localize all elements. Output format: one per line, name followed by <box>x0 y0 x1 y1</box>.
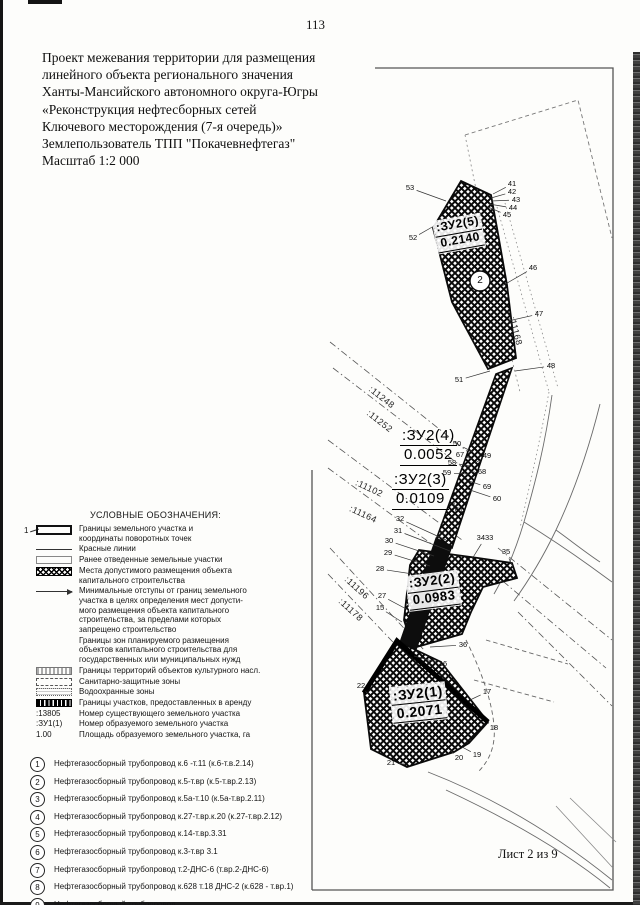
point-leader <box>386 612 402 622</box>
legend-symbol-sanitary-icon <box>36 678 72 686</box>
pipeline-item-number: 6 <box>30 845 45 860</box>
legend-symbol-prev-icon <box>36 556 72 564</box>
legend-symbol-text: 1.00 <box>36 730 72 740</box>
pipeline-item: 7Нефтегазосборный трубопровод т.2-ДНС-6 … <box>30 863 366 878</box>
dotted-line-continuation <box>520 392 549 528</box>
legend-symbol-water-icon <box>36 688 72 696</box>
legend-item-label: Санитарно-защитные зоны <box>79 677 180 687</box>
pipeline-items: 1Нефтегазосборный трубопровод к.6 -т.11 … <box>30 757 366 905</box>
legend-item-label: Границы участков, предоставленных в арен… <box>79 698 251 708</box>
pipeline-item-label: Нефтегазосборный трубопровод к.6 -т.11 (… <box>54 757 254 769</box>
pipeline-item: 3Нефтегазосборный трубопровод к.5а-т.10 … <box>30 792 366 807</box>
corridor-strip-upper <box>436 368 512 548</box>
pipeline-item: 4Нефтегазосборный трубопровод к.27-т.вр.… <box>30 810 366 825</box>
legend-item: Границы территорий объектов культурного … <box>36 666 330 676</box>
legend-item-label: Красные линии <box>79 544 136 554</box>
legend-item: Места допустимого размещения объекта кап… <box>36 566 330 585</box>
pipeline-item-number: 3 <box>30 792 45 807</box>
legend-item-label: Номер существующего земельного участка <box>79 709 240 719</box>
dashed-road-pair <box>466 640 568 772</box>
pipeline-item: 2Нефтегазосборный трубопровод к.5-т.вр (… <box>30 775 366 790</box>
point-leader <box>491 200 509 201</box>
legend-item: Границы зон планируемого размещения объе… <box>36 636 330 665</box>
pipeline-item: 8Нефтегазосборный трубопровод к.628 т.18… <box>30 880 366 895</box>
pipeline-item-number: 5 <box>30 827 45 842</box>
pipeline-item-number: 1 <box>30 757 45 772</box>
point-leader <box>488 723 489 724</box>
legend-item-label: Границы зон планируемого размещения объе… <box>79 636 240 665</box>
legend-item: Санитарно-защитные зоны <box>36 677 330 687</box>
pipeline-item-number: 2 <box>30 775 45 790</box>
legend: УСЛОВНЫЕ ОБОЗНАЧЕНИЯ: 1Границы земельног… <box>36 510 330 741</box>
legend-item-label: Номер образуемого земельного участка <box>79 719 228 729</box>
legend-symbol-text: :ЗУ1(1) <box>36 719 72 729</box>
point-leader <box>396 543 434 556</box>
road-lines <box>428 395 612 888</box>
legend-title: УСЛОВНЫЕ ОБОЗНАЧЕНИЯ: <box>90 510 330 520</box>
legend-item: Ранее отведенные земельные участки <box>36 555 330 565</box>
legend-item-label: Места допустимого размещения объекта кап… <box>79 566 232 585</box>
legend-item: :ЗУ1(1)Номер образуемого земельного учас… <box>36 719 330 729</box>
legend-item: Границы участков, предоставленных в арен… <box>36 698 330 708</box>
point-leader <box>493 187 506 194</box>
pipeline-item: 6Нефтегазосборный трубопровод к.3-т.вр 3… <box>30 845 366 860</box>
pipeline-item-label: Нефтегазосборный трубопровод к.5-т.вр (к… <box>54 775 256 787</box>
pipeline-item-label: Нефтегазосборный трубопровод к.14-т.вр.3… <box>54 827 227 839</box>
legend-item-label: Минимальные отступы от границ земельного… <box>79 586 247 635</box>
legend-item-label: Границы земельного участка и координаты … <box>79 524 193 543</box>
legend-symbol-culture-icon <box>36 667 72 675</box>
document-page: 113 Проект межевания территории для разм… <box>0 0 640 905</box>
legend-items: 1Границы земельного участка и координаты… <box>36 524 330 740</box>
legend-item-label: Границы территорий объектов культурного … <box>79 666 260 676</box>
pipeline-item-label: Нефтегазосборный трубопровод к.636 (т.8 … <box>54 898 239 905</box>
legend-symbol-arrow-icon <box>36 591 72 592</box>
pipeline-item-label: Нефтегазосборный трубопровод к.3-т.вр 3.… <box>54 845 218 857</box>
legend-symbol-boundary-icon <box>36 525 72 535</box>
pipeline-item-label: Нефтегазосборный трубопровод к.5а-т.10 (… <box>54 792 265 804</box>
legend-symbol-redline-icon <box>36 549 72 550</box>
pipeline-list: 1Нефтегазосборный трубопровод к.6 -т.11 … <box>30 757 366 905</box>
pipeline-item-number: 8 <box>30 880 45 895</box>
point-leader <box>417 190 446 201</box>
point-leader <box>466 371 490 378</box>
point-leader <box>470 695 481 700</box>
legend-item: Минимальные отступы от границ земельного… <box>36 586 330 635</box>
sheet-label: Лист 2 из 9 <box>498 847 618 862</box>
legend-item: 1Границы земельного участка и координаты… <box>36 524 330 543</box>
point-leader <box>472 544 481 559</box>
point-leader <box>462 747 471 752</box>
point-leader <box>491 194 505 198</box>
pipeline-item-number: 7 <box>30 863 45 878</box>
legend-item: Красные линии <box>36 544 330 554</box>
pipeline-item-number: 4 <box>30 810 45 825</box>
extra-marks <box>470 271 490 291</box>
pipeline-item: 5Нефтегазосборный трубопровод к.14-т.вр.… <box>30 827 366 842</box>
legend-item: :13805Номер существующего земельного уча… <box>36 709 330 719</box>
circled-point-icon <box>470 271 490 291</box>
legend-item-label: Ранее отведенные земельные участки <box>79 555 222 565</box>
point-leader <box>515 367 544 371</box>
pipeline-item-label: Нефтегазосборный трубопровод к.27-т.вр.к… <box>54 810 282 822</box>
legend-item: Водоохранные зоны <box>36 687 330 697</box>
legend-item-label: Водоохранные зоны <box>79 687 154 697</box>
legend-item: 1.00Площадь образуемого земельного участ… <box>36 730 330 740</box>
legend-symbol-lease-icon <box>36 699 72 707</box>
point-leader <box>419 226 434 235</box>
pipeline-item-number: 9 <box>30 898 45 905</box>
legend-item-marker: 1 <box>24 526 28 535</box>
legend-symbol-hatch-icon <box>36 567 72 576</box>
legend-item-label: Площадь образуемого земельного участка, … <box>79 730 250 740</box>
pipeline-item: 9Нефтегазосборный трубопровод к.636 (т.8… <box>30 898 366 905</box>
pipeline-item-label: Нефтегазосборный трубопровод т.2-ДНС-6 (… <box>54 863 269 875</box>
pipeline-item-label: Нефтегазосборный трубопровод к.628 т.18 … <box>54 880 293 892</box>
point-leader <box>430 645 456 647</box>
pipeline-item: 1Нефтегазосборный трубопровод к.6 -т.11 … <box>30 757 366 772</box>
legend-symbol-text: :13805 <box>36 709 72 719</box>
